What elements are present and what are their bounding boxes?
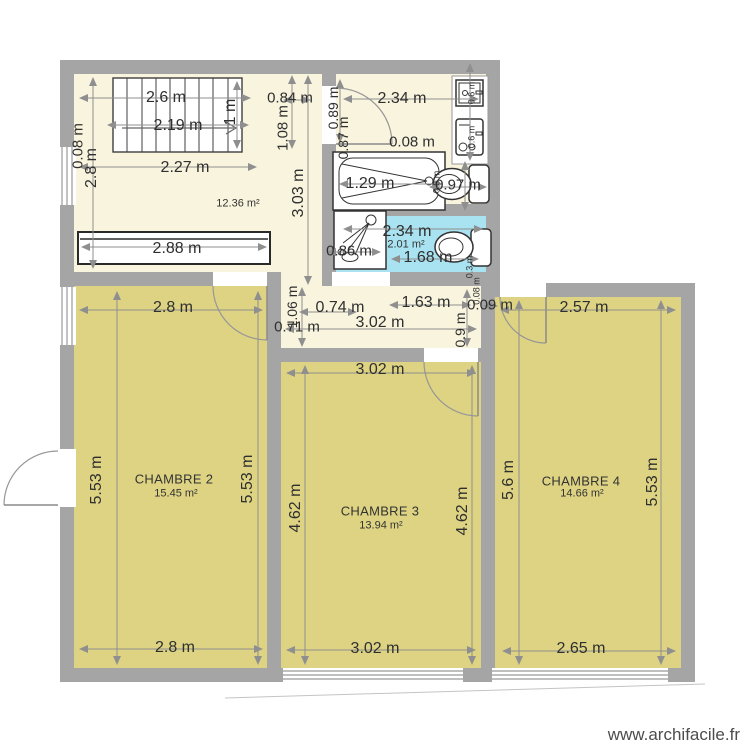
- shower: [334, 211, 386, 269]
- dim-stair-height: 1 m: [223, 99, 239, 126]
- room-name-chambre2: CHAMBRE 2: [135, 473, 214, 486]
- dim-corridor-t: 0.08 m: [473, 277, 482, 305]
- dim-chambre3-bottom: 3.02 m: [351, 641, 400, 657]
- dim-bath-door-2: 0.87 m: [336, 117, 350, 160]
- dim-wc-side: 0.6 m: [433, 171, 442, 194]
- dim-chambre3-left: 4.62 m: [288, 484, 304, 533]
- dim-chambre3-top: 3.02 m: [356, 362, 405, 378]
- dim-corridor-width: 3.02 m: [356, 315, 405, 331]
- dim-entry-width: 0.84 m: [267, 91, 313, 106]
- dim-chambre2-bottom: 2.8 m: [155, 640, 195, 656]
- room-area-chambre4: 14.66 m²: [560, 489, 603, 500]
- room-area-chambre3: 13.94 m²: [359, 521, 402, 532]
- dim-chambre2-right: 5.53 m: [240, 455, 256, 504]
- window-chambre3: [283, 668, 463, 682]
- dim-washer: 0.6 m: [468, 82, 477, 105]
- dim-wardrobe: 2.88 m: [153, 241, 202, 257]
- dim-shower: 0.86 m: [326, 244, 372, 259]
- dim-chambre4-top: 2.57 m: [560, 300, 609, 316]
- dim-bath-gap: 0.08 m: [389, 135, 435, 150]
- terrain-line: [225, 684, 705, 698]
- floor-plan-page: 2.6 m 2.19 m 1 m 2.27 m 0.08 m 2.8 m 12.…: [0, 0, 750, 750]
- dim-corridor-2: 1.63 m: [402, 295, 451, 311]
- dim-chambre2-top: 2.8 m: [153, 300, 193, 316]
- dim-chambre2-left: 5.53 m: [89, 456, 105, 505]
- window-chambre2: [58, 287, 76, 345]
- dim-cistern: 0.3 m: [466, 256, 475, 279]
- dim-dryer: 0.6 m: [468, 126, 477, 149]
- dim-chambre3-right: 4.62 m: [455, 487, 471, 536]
- dim-bathroom-inner: 1.68 m: [404, 250, 453, 266]
- dim-entry-height: 1.08 m: [276, 105, 291, 151]
- room-area-hall: 12.36 m²: [216, 199, 259, 210]
- dim-chambre4-right: 5.53 m: [645, 458, 661, 507]
- room-name-chambre3: CHAMBRE 3: [341, 505, 420, 518]
- dim-bath-width: 2.34 m: [378, 91, 427, 107]
- room-area-chambre2: 15.45 m²: [154, 489, 197, 500]
- dim-corridor-v1: 1.06 m: [285, 286, 299, 329]
- watermark: www.archifacile.fr: [608, 726, 740, 743]
- dim-hall-left-height: 2.8 m: [84, 148, 100, 188]
- dim-stair-width: 2.6 m: [146, 90, 186, 106]
- dim-corridor-v2: 0.9 m: [453, 312, 467, 347]
- dim-hall-width: 2.27 m: [161, 160, 210, 176]
- window-chambre4: [492, 668, 668, 682]
- dim-chambre4-bottom: 2.65 m: [557, 641, 606, 657]
- dim-bathtub: 1.29 m: [346, 176, 395, 192]
- room-name-chambre4: CHAMBRE 4: [542, 475, 621, 488]
- dim-chambre4-left: 5.6 m: [501, 460, 517, 500]
- dim-stair-run: 2.19 m: [154, 118, 203, 134]
- dim-hall-vertical: 3.03 m: [291, 169, 307, 218]
- dim-wc-width: 0.97 m: [435, 178, 481, 193]
